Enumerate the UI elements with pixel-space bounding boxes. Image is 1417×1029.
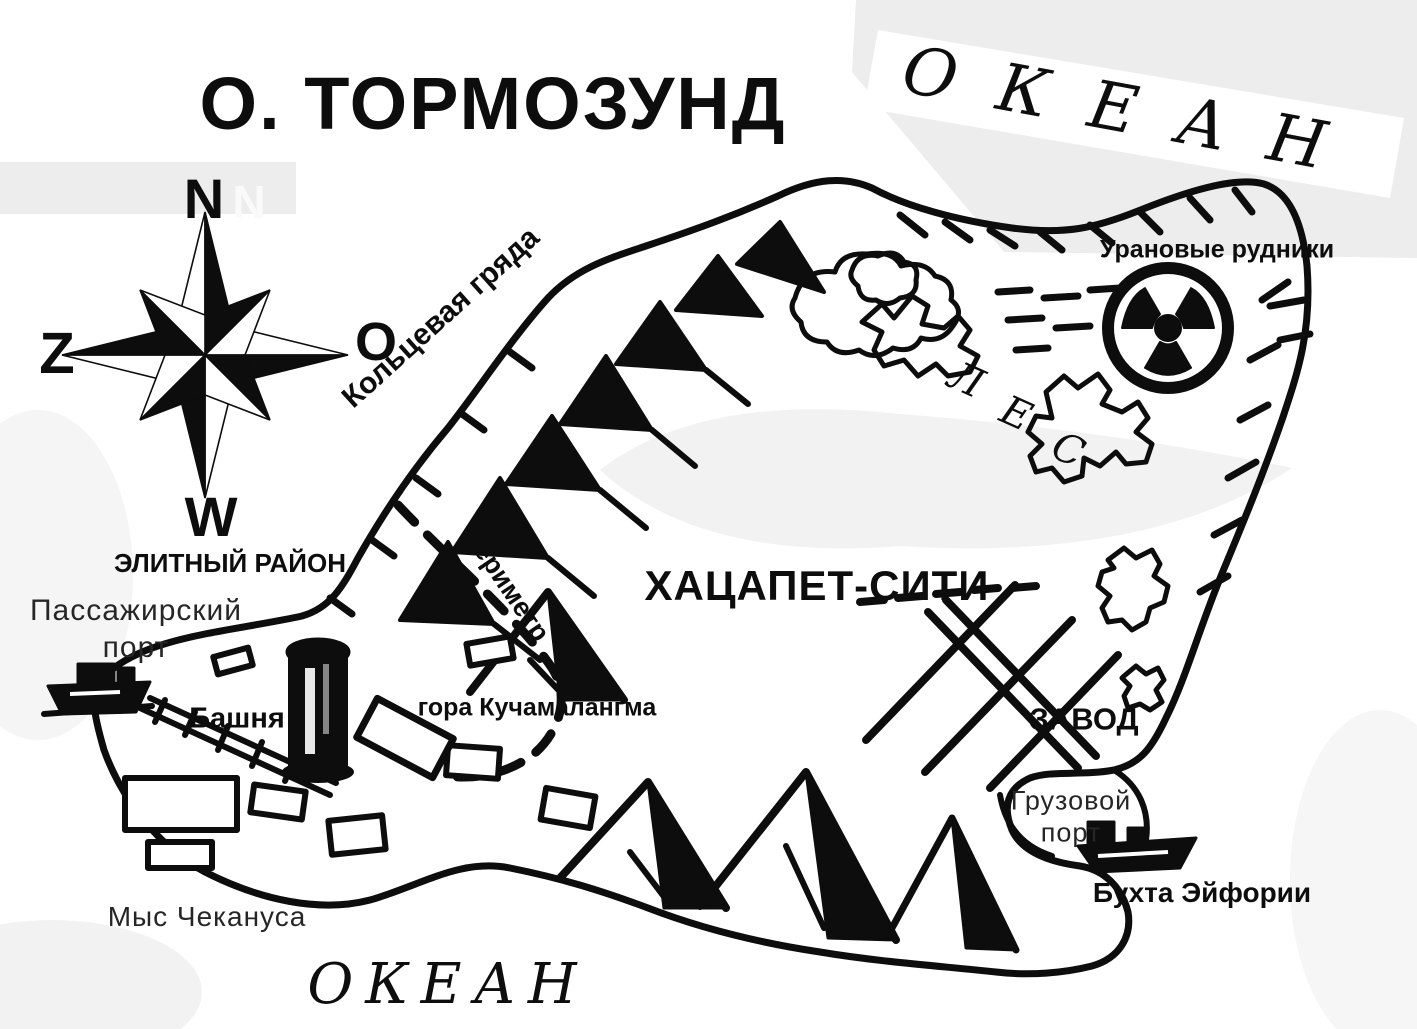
- elite-district-buildings: [125, 636, 595, 868]
- island-map: О. ТОРМОЗУНД ОКЕАН ОКЕАН N N Z O W Кольц…: [0, 0, 1417, 1029]
- compass-north-label: N: [184, 171, 224, 227]
- euphoria-bay-label: Бухта Эйфории: [1093, 879, 1311, 907]
- cape-label: Мыс Чекануса: [108, 903, 307, 931]
- ocean-label-south: ОКЕАН: [307, 957, 588, 1013]
- compass-rose-icon: [62, 212, 348, 498]
- tower-drawing: [282, 639, 354, 783]
- passenger-port-label-line1: Пассажирский: [30, 596, 242, 626]
- cargo-port-label-line1: Грузовой: [1011, 788, 1132, 815]
- compass-north-ghost-label: N: [232, 179, 265, 225]
- roads-grid: [866, 585, 1118, 788]
- map-title: О. ТОРМОЗУНД: [200, 67, 787, 141]
- radiation-icon: [1108, 268, 1228, 388]
- compass-west-label: Z: [39, 325, 74, 383]
- passenger-port-label-line2: порт: [103, 633, 170, 663]
- mountain-label: гора Кучамалангма: [418, 696, 657, 721]
- uranium-mines-label: Урановые рудники: [1100, 238, 1334, 263]
- tower-label: Башня: [189, 705, 285, 734]
- elite-district-label: ЭЛИТНЫЙ РАЙОН: [114, 550, 346, 576]
- compass-south-label: W: [185, 489, 238, 545]
- factory-label: ЗАВОД: [1029, 704, 1138, 735]
- cargo-port-label-line2: порт: [1041, 820, 1101, 847]
- south-mountains: [560, 772, 1016, 950]
- city-label: ХАЦАПЕТ-СИТИ: [644, 565, 989, 607]
